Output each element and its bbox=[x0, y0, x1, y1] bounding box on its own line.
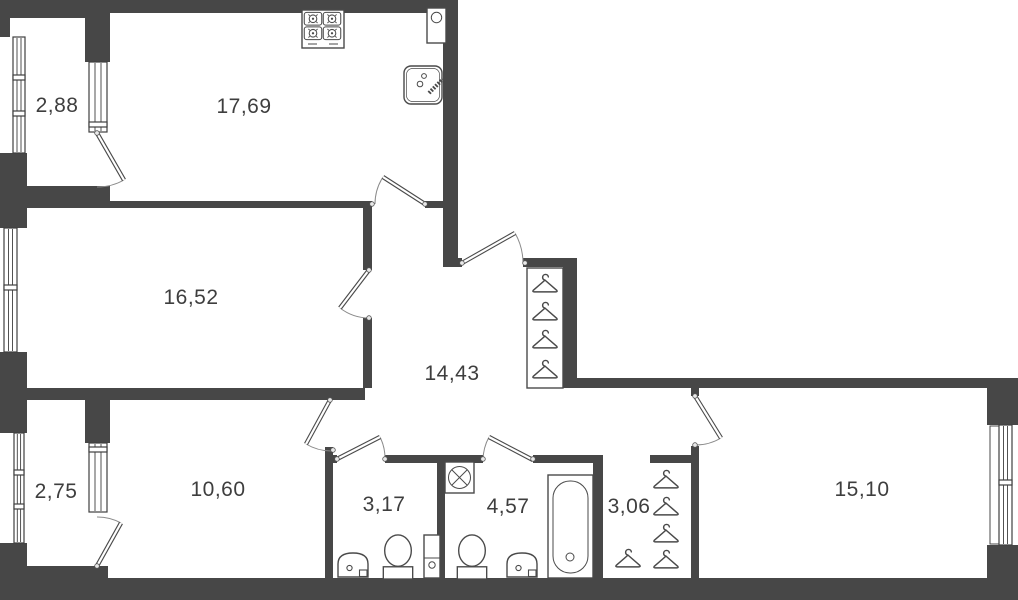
balcony-top-door-icon bbox=[95, 131, 124, 187]
room-label-kitchen: 17,69 bbox=[216, 95, 271, 118]
room-label-balcony-bottom: 2,75 bbox=[35, 480, 78, 503]
bathroom-door-icon bbox=[481, 437, 536, 461]
room-label-hallway: 14,43 bbox=[424, 362, 479, 385]
balcony-door-window-top-icon bbox=[89, 62, 107, 132]
balcony-door-window-bottom-icon bbox=[89, 443, 107, 512]
room-labels: 2,88 17,69 16,52 14,43 2,75 10,60 3,17 4… bbox=[35, 94, 890, 518]
hall-wardrobe bbox=[527, 268, 563, 388]
room-label-bedroom-left: 10,60 bbox=[190, 478, 245, 501]
bathroom-toilet-icon bbox=[457, 535, 486, 579]
wc-door-icon bbox=[335, 437, 388, 461]
window-living-room-icon bbox=[4, 228, 17, 352]
entrance-door-icon bbox=[460, 233, 528, 265]
room-label-wc: 3,17 bbox=[363, 493, 406, 516]
closet-hangers bbox=[616, 470, 678, 567]
floor-plan: 2,88 17,69 16,52 14,43 2,75 10,60 3,17 4… bbox=[0, 0, 1018, 600]
hanger-icon bbox=[654, 524, 678, 541]
stove-icon bbox=[302, 10, 344, 48]
bathtub-icon bbox=[548, 475, 593, 578]
bedroom-right-door-icon bbox=[693, 394, 721, 448]
hanger-icon bbox=[616, 549, 640, 566]
room-label-living-room: 16,52 bbox=[163, 286, 218, 309]
hanger-icon bbox=[654, 550, 678, 567]
window-balcony-top-icon bbox=[13, 37, 25, 153]
room-label-bathroom: 4,57 bbox=[487, 495, 530, 518]
room-label-bedroom-right: 15,10 bbox=[834, 478, 889, 501]
room-label-closet: 3,06 bbox=[608, 495, 651, 518]
wc-toilet-icon bbox=[383, 535, 412, 579]
bedroom-left-door-icon bbox=[306, 398, 335, 453]
kitchen-sink-icon bbox=[404, 66, 443, 104]
washing-machine-icon bbox=[445, 462, 474, 493]
wc-sink-icon bbox=[338, 553, 368, 577]
hanger-icon bbox=[654, 497, 678, 514]
kitchen-door-icon bbox=[370, 177, 428, 206]
boiler-icon bbox=[427, 8, 446, 43]
living-room-door-icon bbox=[340, 268, 371, 321]
window-bedroom-right-icon bbox=[990, 425, 1012, 545]
hanger-icon bbox=[654, 470, 678, 487]
floor-plan-drawing: 2,88 17,69 16,52 14,43 2,75 10,60 3,17 4… bbox=[0, 0, 1018, 600]
room-label-balcony-top: 2,88 bbox=[36, 94, 79, 117]
plumbing-riser-icon bbox=[424, 535, 440, 578]
balcony-bottom-door-icon bbox=[95, 517, 121, 568]
bathroom-sink-icon bbox=[507, 553, 537, 577]
window-balcony-bottom-icon bbox=[14, 433, 24, 543]
